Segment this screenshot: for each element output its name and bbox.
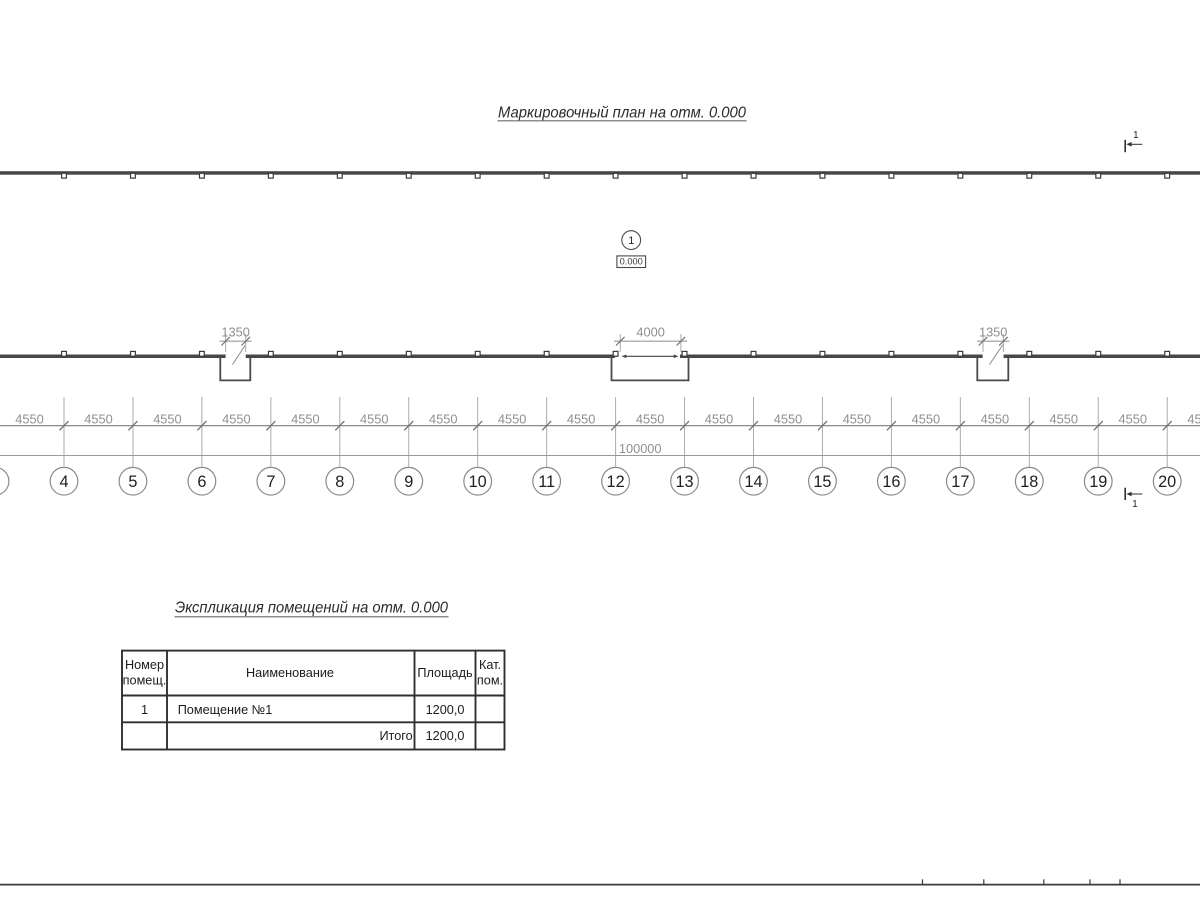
svg-text:4550: 4550 xyxy=(84,412,112,427)
svg-text:4000: 4000 xyxy=(636,324,664,339)
svg-text:4550: 4550 xyxy=(636,412,664,427)
svg-text:100000: 100000 xyxy=(619,441,662,456)
svg-text:18: 18 xyxy=(1020,473,1038,491)
svg-text:1350: 1350 xyxy=(979,324,1007,339)
svg-text:9: 9 xyxy=(404,473,413,491)
svg-text:4550: 4550 xyxy=(498,412,526,427)
svg-text:пом.: пом. xyxy=(477,673,503,687)
svg-text:4550: 4550 xyxy=(981,412,1009,427)
svg-text:Номер: Номер xyxy=(125,658,164,672)
svg-text:1200,0: 1200,0 xyxy=(426,703,465,717)
svg-text:Итого: Итого xyxy=(379,729,412,743)
svg-text:13: 13 xyxy=(675,473,693,491)
svg-text:19: 19 xyxy=(1089,473,1107,491)
svg-text:Площадь: Площадь xyxy=(417,666,473,680)
svg-text:7: 7 xyxy=(266,473,275,491)
svg-text:17: 17 xyxy=(951,473,969,491)
svg-text:16: 16 xyxy=(882,473,900,491)
svg-text:8: 8 xyxy=(335,473,344,491)
svg-text:4550: 4550 xyxy=(843,412,871,427)
svg-text:14: 14 xyxy=(744,473,762,491)
svg-text:4550: 4550 xyxy=(1050,412,1078,427)
svg-text:10: 10 xyxy=(469,473,487,491)
svg-text:1200,0: 1200,0 xyxy=(426,729,465,743)
svg-text:4550: 4550 xyxy=(705,412,733,427)
svg-text:1: 1 xyxy=(141,703,148,717)
svg-text:Кат.: Кат. xyxy=(479,658,501,672)
svg-text:4550: 4550 xyxy=(153,412,181,427)
svg-text:1: 1 xyxy=(1133,130,1138,141)
svg-text:4550: 4550 xyxy=(15,412,43,427)
svg-text:4550: 4550 xyxy=(222,412,250,427)
svg-text:4550: 4550 xyxy=(291,412,319,427)
svg-text:15: 15 xyxy=(813,473,831,491)
svg-text:Маркировочный план на отм. 0.0: Маркировочный план на отм. 0.000 xyxy=(498,105,746,122)
svg-text:5: 5 xyxy=(128,473,137,491)
svg-text:4550: 4550 xyxy=(567,412,595,427)
svg-text:12: 12 xyxy=(607,473,625,491)
svg-text:1: 1 xyxy=(1132,499,1137,510)
svg-text:Экспликация помещений на отм.: Экспликация помещений на отм. 0.000 xyxy=(175,600,448,617)
svg-text:6: 6 xyxy=(197,473,206,491)
svg-text:1350: 1350 xyxy=(221,324,249,339)
svg-text:1: 1 xyxy=(628,235,634,247)
svg-text:4550: 4550 xyxy=(1118,412,1146,427)
svg-text:4550: 4550 xyxy=(1187,412,1200,427)
svg-text:4550: 4550 xyxy=(912,412,940,427)
svg-text:4550: 4550 xyxy=(360,412,388,427)
svg-text:20: 20 xyxy=(1158,473,1176,491)
svg-text:11: 11 xyxy=(538,473,555,491)
svg-text:0.000: 0.000 xyxy=(620,257,643,267)
svg-text:4550: 4550 xyxy=(774,412,802,427)
svg-text:Наименование: Наименование xyxy=(246,666,334,680)
svg-text:помещ.: помещ. xyxy=(123,673,167,687)
svg-text:4: 4 xyxy=(59,473,68,491)
svg-text:Помещение №1: Помещение №1 xyxy=(178,703,273,717)
svg-text:4550: 4550 xyxy=(429,412,457,427)
